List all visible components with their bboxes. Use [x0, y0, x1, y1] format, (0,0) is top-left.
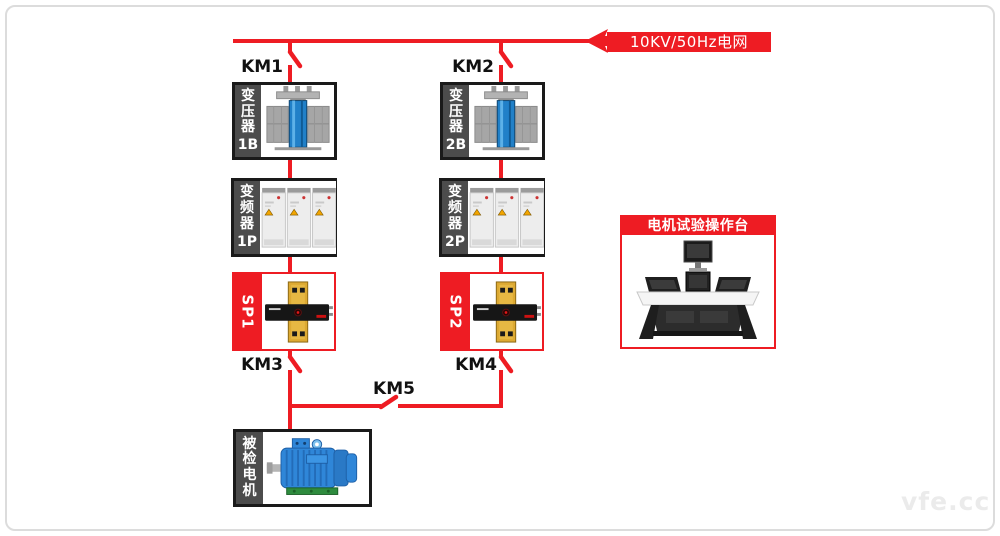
km1-switch: [290, 39, 300, 84]
inverter-1p-code: 1P: [237, 234, 257, 250]
km5-label: KM5: [371, 379, 417, 399]
transformer-2b-box: 变压器 2B: [440, 82, 545, 160]
km3-label: KM3: [237, 355, 283, 375]
transformer-2b-code: 2B: [446, 137, 466, 153]
km1-label: KM1: [237, 57, 283, 77]
km3-switch: [290, 349, 300, 431]
inverter-1p-box: 变频器 1P: [231, 178, 337, 257]
motor-under-test-box: 被检电机: [233, 429, 372, 507]
circuit-lines: [0, 0, 1000, 536]
transformer-icon: [262, 86, 334, 156]
transformer-1b-sidebar: 变压器 1B: [235, 85, 261, 157]
power-sensor-icon: [470, 280, 542, 344]
inverter-cabinets-icon: [468, 186, 544, 250]
sensor-sp1-sidebar: SP1: [234, 274, 262, 349]
inverter-1p-sidebar: 变频器 1P: [234, 181, 260, 254]
operator-console-icon: [632, 239, 764, 343]
inverter-2p-name: 变频器: [448, 185, 463, 232]
inverter-2p-box: 变频器 2P: [439, 178, 545, 257]
transformer-1b-box: 变压器 1B: [232, 82, 337, 160]
sensor-sp1-box: SP1: [232, 272, 336, 351]
operator-console-box: 电机试验操作台: [620, 215, 776, 349]
motor-icon: [264, 435, 368, 501]
transformer-2b-name: 变压器: [449, 89, 464, 136]
transformer-2b-sidebar: 变压器 2B: [443, 85, 469, 157]
inverter-2p-code: 2P: [445, 234, 465, 250]
motor-label: 被检电机: [242, 437, 257, 500]
grid-source-label: 10KV/50Hz电网: [607, 32, 771, 52]
transformer-icon: [470, 86, 542, 156]
power-sensor-icon: [262, 280, 334, 344]
sensor-sp2-box: SP2: [440, 272, 544, 351]
sensor-sp1-code: SP1: [239, 294, 257, 329]
transformer-1b-code: 1B: [238, 137, 258, 153]
watermark: vfe.cc: [901, 487, 990, 516]
motor-sidebar: 被检电机: [236, 432, 263, 504]
inverter-1p-name: 变频器: [240, 185, 255, 232]
km4-label: KM4: [451, 355, 497, 375]
inverter-cabinets-icon: [260, 186, 336, 250]
km2-label: KM2: [448, 57, 494, 77]
km2-switch: [501, 39, 511, 84]
transformer-1b-name: 变压器: [241, 89, 256, 136]
diagram-canvas: 10KV/50Hz电网 KM1 KM2 KM3 KM4 KM5 变压器 1B: [0, 0, 1000, 536]
operator-console-title: 电机试验操作台: [622, 217, 774, 235]
sensor-sp2-code: SP2: [447, 294, 465, 329]
inverter-2p-sidebar: 变频器 2P: [442, 181, 468, 254]
sensor-sp2-sidebar: SP2: [442, 274, 470, 349]
